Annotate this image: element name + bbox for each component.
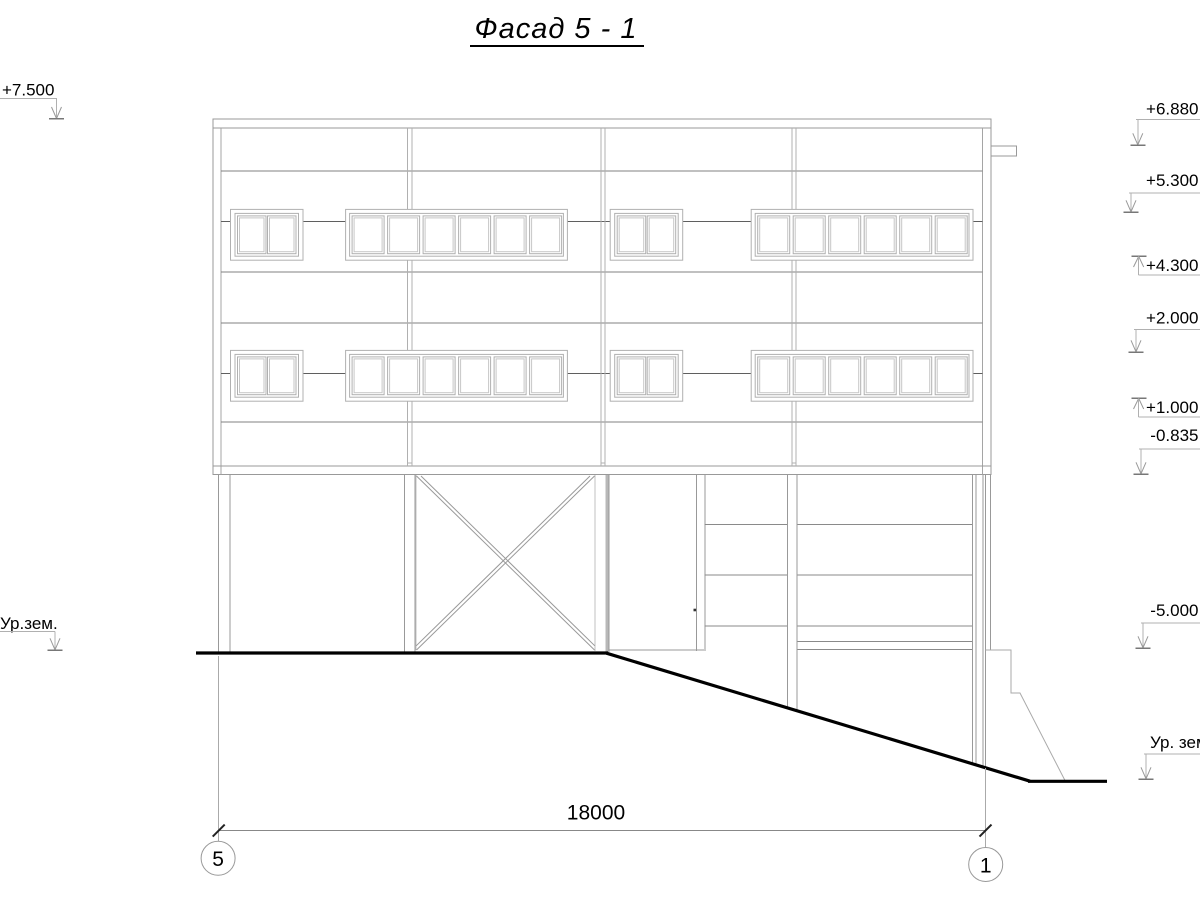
svg-text:+2.000: +2.000 xyxy=(1146,309,1198,328)
svg-text:+4.300: +4.300 xyxy=(1146,256,1198,275)
svg-text:Фасад 5 - 1: Фасад 5 - 1 xyxy=(475,13,638,45)
svg-text:+7.500: +7.500 xyxy=(2,81,54,100)
svg-text:+1.000: +1.000 xyxy=(1146,398,1198,417)
svg-text:-0.835: -0.835 xyxy=(1150,426,1198,445)
svg-text:+5.300: +5.300 xyxy=(1146,171,1198,190)
svg-text:5: 5 xyxy=(212,848,224,871)
svg-text:-5.000: -5.000 xyxy=(1150,601,1198,620)
svg-text:+6.880: +6.880 xyxy=(1146,100,1198,119)
svg-text:Ур. зем.: Ур. зем. xyxy=(1150,733,1200,752)
svg-text:Ур.зем.: Ур.зем. xyxy=(0,614,58,633)
svg-text:18000: 18000 xyxy=(567,802,625,825)
svg-text:1: 1 xyxy=(980,854,992,877)
